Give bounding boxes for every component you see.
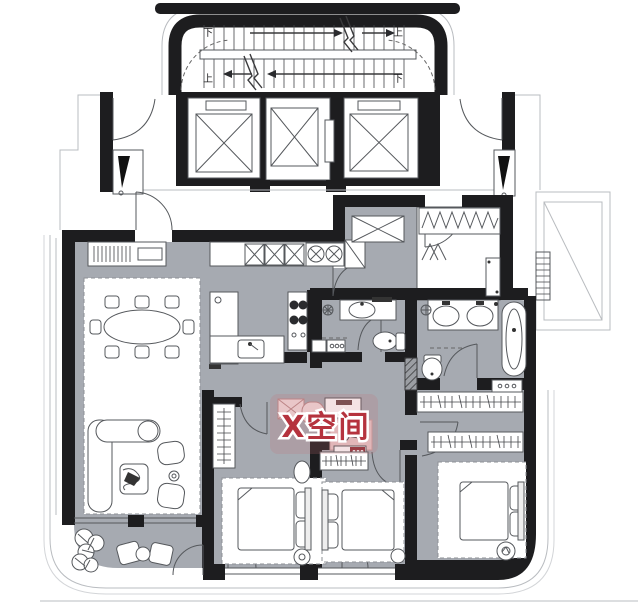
tv-icon	[209, 364, 221, 369]
elevator-bank	[176, 92, 440, 192]
wall-bottom-pier-b	[300, 564, 318, 580]
elevator-shaft-right	[344, 98, 418, 178]
armchair	[157, 440, 186, 465]
wall-west	[62, 230, 75, 525]
stair-label-lower-left: 上	[203, 73, 213, 85]
headboard	[305, 488, 311, 550]
stair-label-lower-right: 下	[393, 74, 403, 85]
fridge	[345, 240, 365, 268]
lobby-door-right	[460, 98, 502, 140]
wall-bath2-top	[310, 288, 410, 300]
wall-balcony-pier-a	[128, 515, 144, 527]
nightstand	[294, 549, 310, 565]
wall-balcony-pier-b	[196, 515, 206, 527]
shoe-cabinet	[352, 216, 404, 242]
elevator-door-right	[358, 101, 400, 110]
master-bedroom	[438, 462, 526, 560]
washer	[312, 340, 345, 352]
wall-bed2-master-a	[405, 390, 417, 415]
lobby-wall-left	[100, 92, 113, 192]
wall-kitchen-top	[172, 230, 345, 242]
nightstand-lamp	[497, 542, 515, 560]
towel-rail	[372, 297, 392, 302]
wall-living-bed1	[202, 390, 214, 568]
elevator-door-middle	[325, 120, 334, 162]
ladder-icon	[536, 252, 550, 300]
double-vanity	[428, 300, 498, 330]
wall-right-upper	[500, 195, 513, 300]
wall-bottom-pier-a	[203, 564, 225, 580]
shower-head-icon	[421, 305, 431, 315]
wall-bottom-pier-c	[395, 564, 417, 580]
wall-shower-hatch	[405, 358, 417, 390]
equipment-platform	[536, 192, 610, 330]
wall-bath2-bottom-a	[310, 352, 362, 362]
floor-plan-page: 下 上 上 下	[0, 0, 640, 611]
dining-entry-door	[136, 192, 172, 230]
lobby-door-left	[113, 98, 155, 140]
bathtub	[502, 302, 526, 376]
nightstand	[294, 461, 310, 483]
coffee-table	[120, 464, 148, 494]
headboard	[322, 490, 328, 550]
exterior-right-outline	[515, 95, 540, 190]
headboard	[518, 482, 524, 540]
stair-label-upper-left: 下	[203, 28, 213, 39]
flower-stool-icon	[169, 471, 179, 481]
toilet	[422, 355, 442, 380]
mattress	[238, 488, 294, 550]
elevator-door-left	[206, 101, 246, 110]
stair-arrow-up	[250, 29, 395, 37]
wall-bed2-master-b	[405, 455, 417, 568]
mattress	[342, 490, 394, 550]
toilet	[373, 332, 405, 350]
wall-bed2-top-b	[400, 440, 417, 450]
dining-table	[104, 310, 180, 344]
bath-cabinet	[492, 380, 522, 392]
plant-icon	[72, 529, 104, 572]
sideboard	[88, 242, 166, 266]
stair-top-wall	[155, 3, 460, 14]
kitchen-counter-top	[210, 242, 345, 266]
watermark: X空间	[270, 394, 378, 454]
stair-landing	[200, 50, 416, 59]
foyer-cabinet	[486, 258, 500, 296]
bed1-closet	[213, 404, 235, 468]
stair-treads-upper	[204, 25, 404, 50]
dining-set	[90, 296, 194, 358]
cooktop-burners	[288, 292, 308, 350]
side-table	[138, 421, 158, 441]
stool	[391, 549, 405, 563]
wall-bath1-top	[410, 288, 528, 300]
stair-label-upper-right: 上	[393, 27, 403, 39]
bed2	[322, 490, 394, 550]
bed2-closet	[320, 452, 368, 470]
wall-bath-divider	[405, 288, 417, 358]
wall-entry-top-a	[345, 195, 425, 207]
shower-head-icon	[323, 305, 333, 315]
armchair	[156, 482, 185, 509]
elevator-shaft-left	[188, 98, 260, 178]
floor-plan: 下 上 上 下	[0, 0, 640, 611]
mattress	[460, 482, 508, 540]
exterior-left-outline	[60, 95, 100, 230]
elevator-shaft-middle	[266, 98, 334, 180]
watermark-text: X空间	[281, 410, 370, 445]
